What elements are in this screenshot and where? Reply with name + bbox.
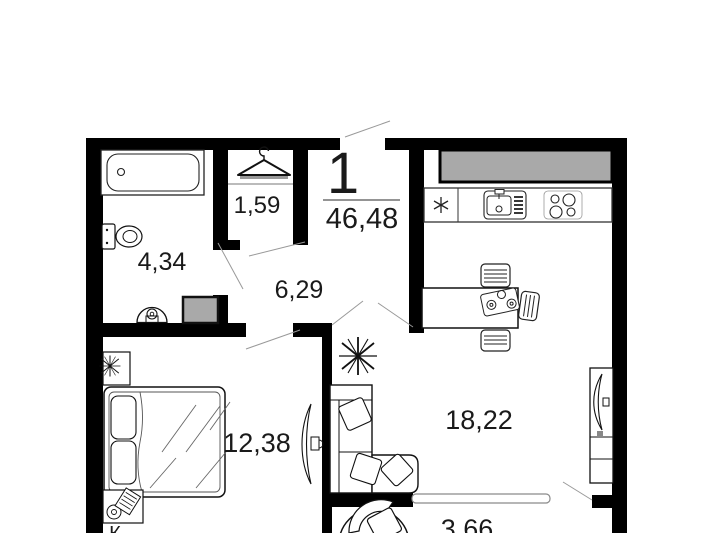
- balcony-window-strip: [412, 494, 550, 503]
- room-label-bedroom: 12,38: [223, 428, 291, 458]
- apartment-type-number: 1: [327, 141, 359, 206]
- bedroom-door-line: [246, 330, 300, 349]
- wall-wardrobe-bottom-stub: [213, 240, 240, 250]
- dining-chair-top-icon: [481, 264, 510, 287]
- wall-hall-bottom-left: [86, 323, 246, 337]
- wall-top-left: [86, 138, 340, 150]
- dining-chair-right-icon: [518, 291, 540, 321]
- room-label-balcony: 3,66: [441, 514, 494, 533]
- dining-chair-bottom-icon: [481, 330, 510, 351]
- nightstand-icon-bottom: [103, 488, 143, 523]
- room-label-wardrobe: 1,59: [234, 192, 281, 219]
- sofa-icon: [330, 385, 418, 493]
- tv-stand-icon: [590, 368, 613, 483]
- wall-balcony-door-stub: [592, 495, 612, 508]
- vent-shaft-icon: [440, 150, 612, 182]
- wardrobe-door-line: [249, 242, 305, 256]
- hanger-icon: [238, 147, 290, 177]
- bathtub-icon: [101, 150, 204, 195]
- balcony-door-line: [563, 482, 592, 500]
- plant-icon-living: [339, 337, 377, 375]
- sink-icon: [484, 190, 526, 220]
- shower-cabinet-icon: [183, 297, 218, 323]
- wall-bath-wardrobe: [213, 150, 228, 240]
- bottom-letter-label: К: [109, 523, 121, 533]
- room-label-bathroom: 4,34: [138, 248, 187, 276]
- bed-icon: [104, 387, 230, 497]
- room-label-kitchen-living: 18,22: [445, 405, 513, 435]
- wall-wardrobe-right: [293, 150, 308, 245]
- toilet-icon: [102, 224, 142, 249]
- hall-opening-line-right: [378, 303, 413, 327]
- tv-icon-bedroom: [302, 404, 323, 484]
- wall-right-outer: [612, 138, 627, 533]
- floor-plan-page: 1 46,48 1,59 4,34 6,29 12,38 18,22 3,66 …: [0, 0, 720, 533]
- room-label-hallway: 6,29: [275, 276, 324, 304]
- entrance-door-line: [345, 121, 390, 137]
- total-area-label: 46,48: [326, 203, 399, 235]
- washing-machine-icon: [137, 308, 167, 323]
- hall-opening-line-left: [332, 301, 363, 325]
- wall-top-right: [385, 138, 627, 150]
- floorplan-svg: 1 46,48 1,59 4,34 6,29 12,38 18,22 3,66 …: [0, 0, 720, 533]
